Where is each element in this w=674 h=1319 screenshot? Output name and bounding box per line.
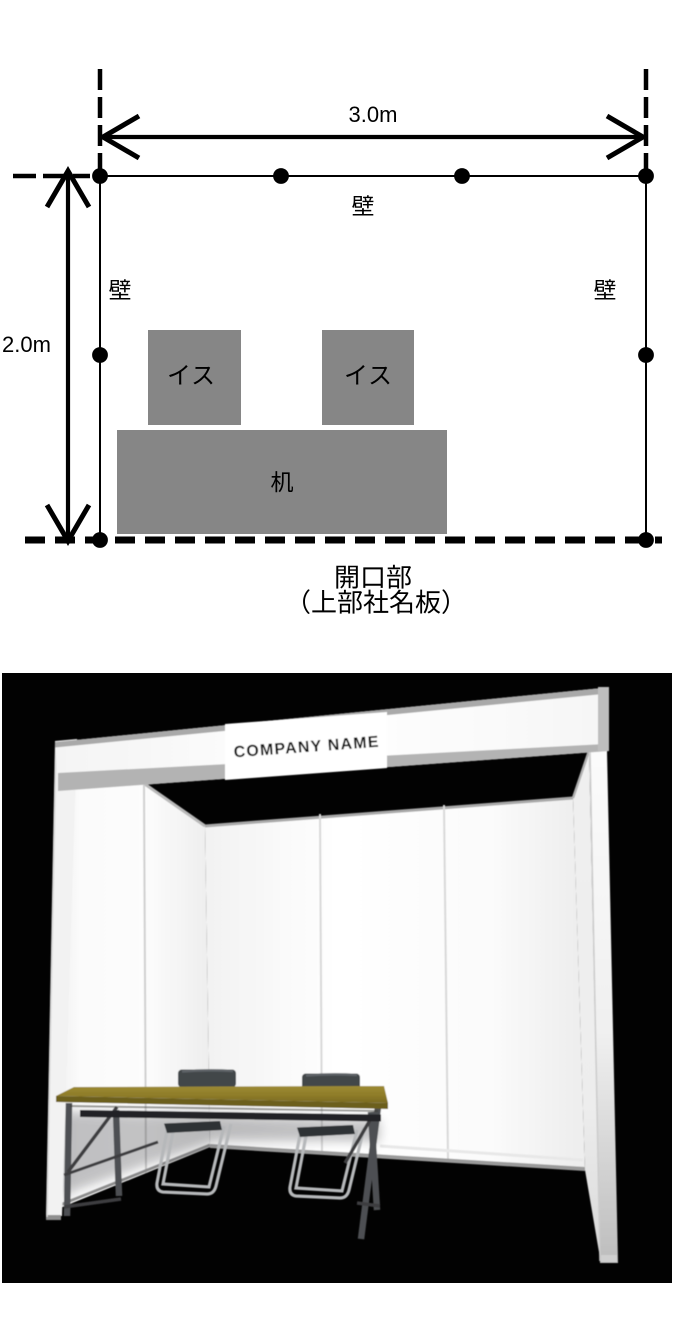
svg-text:3.0m: 3.0m — [349, 102, 398, 127]
svg-text:2.0m: 2.0m — [2, 332, 51, 357]
